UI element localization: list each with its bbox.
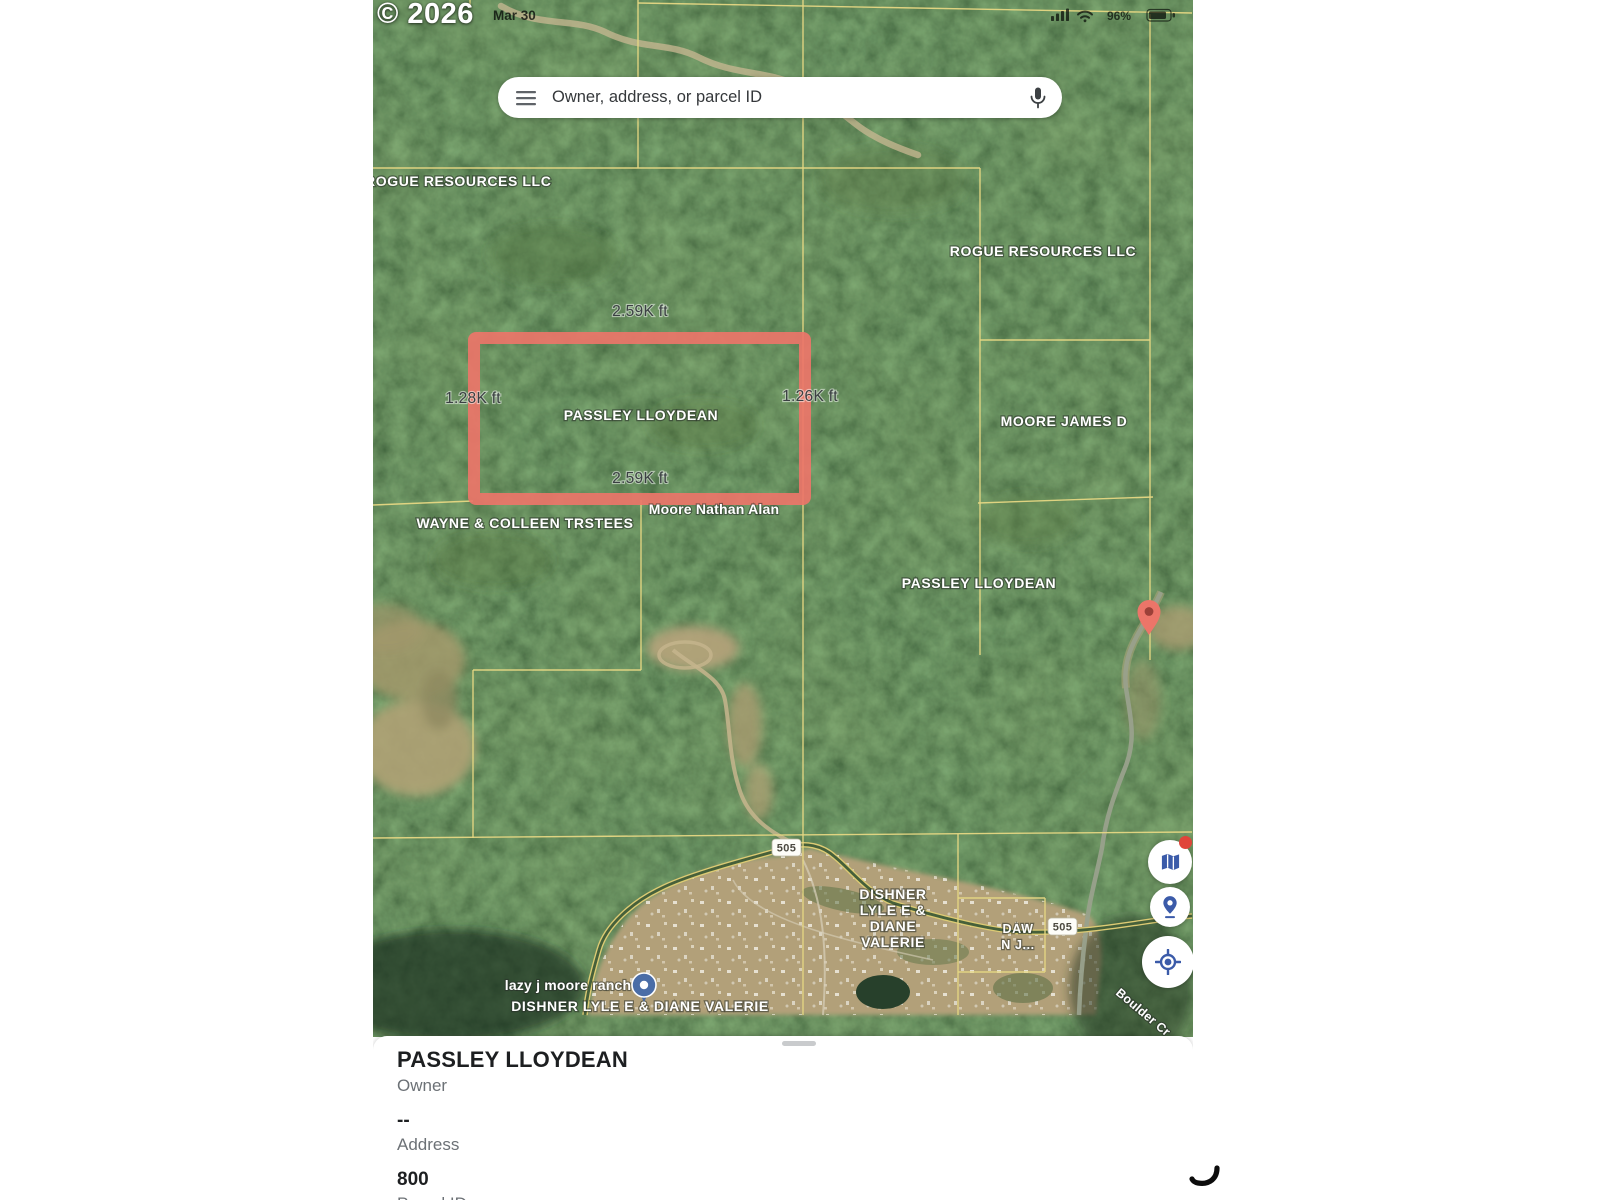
label-dishner-bottom: DISHNER LYLE E & DIANE VALERIE (511, 998, 769, 1014)
parcel-id-label: Parcel ID (397, 1194, 628, 1200)
wifi-icon (1078, 12, 1092, 23)
measurement-bottom: 2.59K ft (612, 470, 668, 487)
label-dishner-2: LYLE E & (860, 902, 927, 918)
status-bar-date: Mar 30 (493, 8, 536, 23)
sheet-drag-handle[interactable] (782, 1041, 816, 1046)
battery-percent-text: 96% (1107, 9, 1131, 23)
menu-icon[interactable] (516, 90, 536, 106)
address-value: -- (397, 1110, 628, 1132)
measurement-left: 1.28K ft (445, 390, 501, 407)
label-rogue-left: ROGUE RESOURCES LLC (373, 173, 551, 189)
label-dishner-3: DIANE (870, 918, 917, 934)
app-frame: 2.59K ft 1.28K ft 1.26K ft 2.59K ft ROGU… (373, 0, 1193, 1200)
label-moore-james: MOORE JAMES D (1001, 413, 1128, 429)
label-dishner-1: DISHNER (859, 886, 926, 902)
label-passley-parcel: PASSLEY LLOYDEAN (564, 407, 719, 423)
label-moore-nathan: Moore Nathan Alan (649, 501, 779, 517)
map-viewport[interactable]: 2.59K ft 1.28K ft 1.26K ft 2.59K ft ROGU… (373, 0, 1193, 1037)
cellular-signal-icon (1051, 9, 1069, 22)
parcel-pin-button[interactable] (1150, 887, 1190, 927)
owner-value: PASSLEY LLOYDEAN (397, 1047, 628, 1073)
owner-label: Owner (397, 1076, 628, 1096)
label-daw-2: N J... (1001, 938, 1034, 952)
copyright-watermark: © 2026 (377, 0, 474, 31)
measurement-right: 1.26K ft (782, 388, 838, 405)
svg-text:505: 505 (777, 843, 797, 855)
route-badge-505-west: 505 (772, 839, 801, 856)
label-lazy-j-moore-ranch: lazy j moore ranch (505, 977, 632, 993)
route-badge-505-east: 505 (1048, 918, 1077, 935)
partial-logo-mark (1186, 1162, 1226, 1200)
parcel-details: PASSLEY LLOYDEAN Owner -- Address 800 Pa… (397, 1047, 628, 1200)
screenshot-page: 2.59K ft 1.28K ft 1.26K ft 2.59K ft ROGU… (0, 0, 1600, 1200)
search-bar[interactable] (498, 77, 1062, 118)
address-label: Address (397, 1135, 628, 1155)
label-wayne-colleen: WAYNE & COLLEEN TRSTEES (416, 515, 633, 531)
measurement-top: 2.59K ft (612, 303, 668, 320)
battery-icon (1147, 10, 1175, 22)
my-location-button[interactable] (1142, 936, 1193, 988)
map-canvas[interactable]: 2.59K ft 1.28K ft 1.26K ft 2.59K ft ROGU… (373, 0, 1193, 1037)
microphone-icon[interactable] (1029, 86, 1047, 110)
search-input[interactable] (550, 87, 1029, 108)
parcel-details-sheet: PASSLEY LLOYDEAN Owner -- Address 800 Pa… (373, 1036, 1193, 1200)
label-passley-right: PASSLEY LLOYDEAN (902, 575, 1057, 591)
label-rogue-right: ROGUE RESOURCES LLC (950, 243, 1136, 259)
notification-dot (1179, 836, 1192, 849)
status-bar-icons: 96% (1051, 5, 1187, 25)
label-daw-1: DAW (1003, 922, 1034, 936)
label-dishner-4: VALERIE (861, 934, 925, 950)
parcel-id-value: 800 (397, 1169, 628, 1191)
svg-text:505: 505 (1053, 922, 1073, 934)
